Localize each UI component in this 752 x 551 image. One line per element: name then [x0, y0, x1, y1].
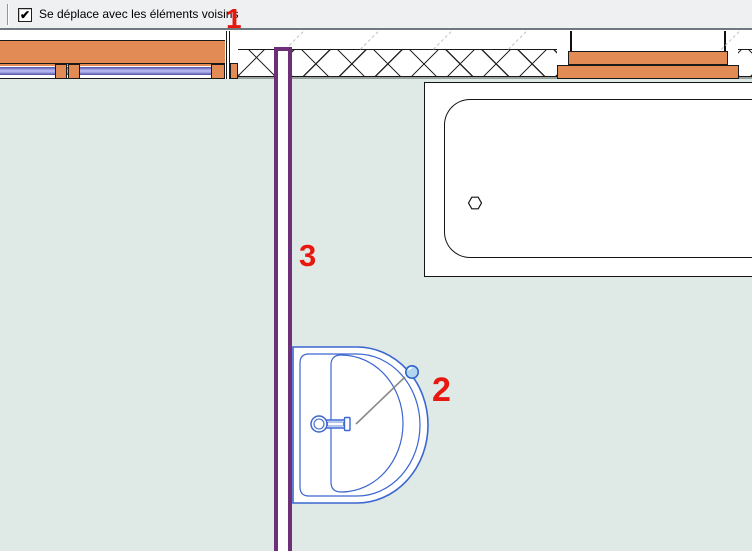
- window-sill[interactable]: [568, 51, 728, 65]
- toolbar-separator-handle: [7, 4, 9, 25]
- wall-junction-line: [229, 31, 230, 79]
- annotation-2: 2: [432, 373, 451, 407]
- window-mullion: [55, 64, 67, 79]
- hatched-wall-segment[interactable]: [738, 49, 752, 77]
- sink-drag-handle[interactable]: [406, 366, 418, 378]
- application-window: ✔ Se déplace avec les éléments voisins: [0, 0, 752, 551]
- reference-line: [360, 31, 378, 49]
- bathtub-drain-icon: [467, 195, 483, 211]
- window-mullion: [230, 63, 238, 79]
- reference-line: [433, 31, 451, 49]
- wall-junction-line: [226, 31, 227, 79]
- bathtub-rim: [444, 99, 752, 258]
- exterior-wall-left[interactable]: [0, 40, 225, 64]
- reference-line: [508, 31, 526, 49]
- checkmark-icon: ✔: [20, 9, 30, 21]
- annotation-1: 1: [226, 5, 242, 33]
- drawing-canvas[interactable]: 2 3: [0, 30, 752, 551]
- opening-jamb-line: [724, 31, 726, 52]
- window-mullion: [68, 64, 80, 79]
- glazing-band[interactable]: [0, 64, 225, 79]
- checkbox-label: Se déplace avec les éléments voisins: [39, 0, 238, 29]
- window-mullion: [211, 64, 225, 79]
- annotation-3: 3: [299, 240, 316, 271]
- hatched-wall-segment[interactable]: [291, 49, 557, 77]
- options-toolbar: ✔ Se déplace avec les éléments voisins: [0, 0, 752, 30]
- sink[interactable]: [288, 338, 434, 510]
- window-sill[interactable]: [557, 65, 739, 80]
- bathtub[interactable]: [424, 82, 752, 277]
- opening-jamb-line: [570, 31, 572, 52]
- hatched-wall-segment[interactable]: [238, 49, 275, 77]
- moves-with-nearby-elements-checkbox[interactable]: ✔: [18, 8, 32, 22]
